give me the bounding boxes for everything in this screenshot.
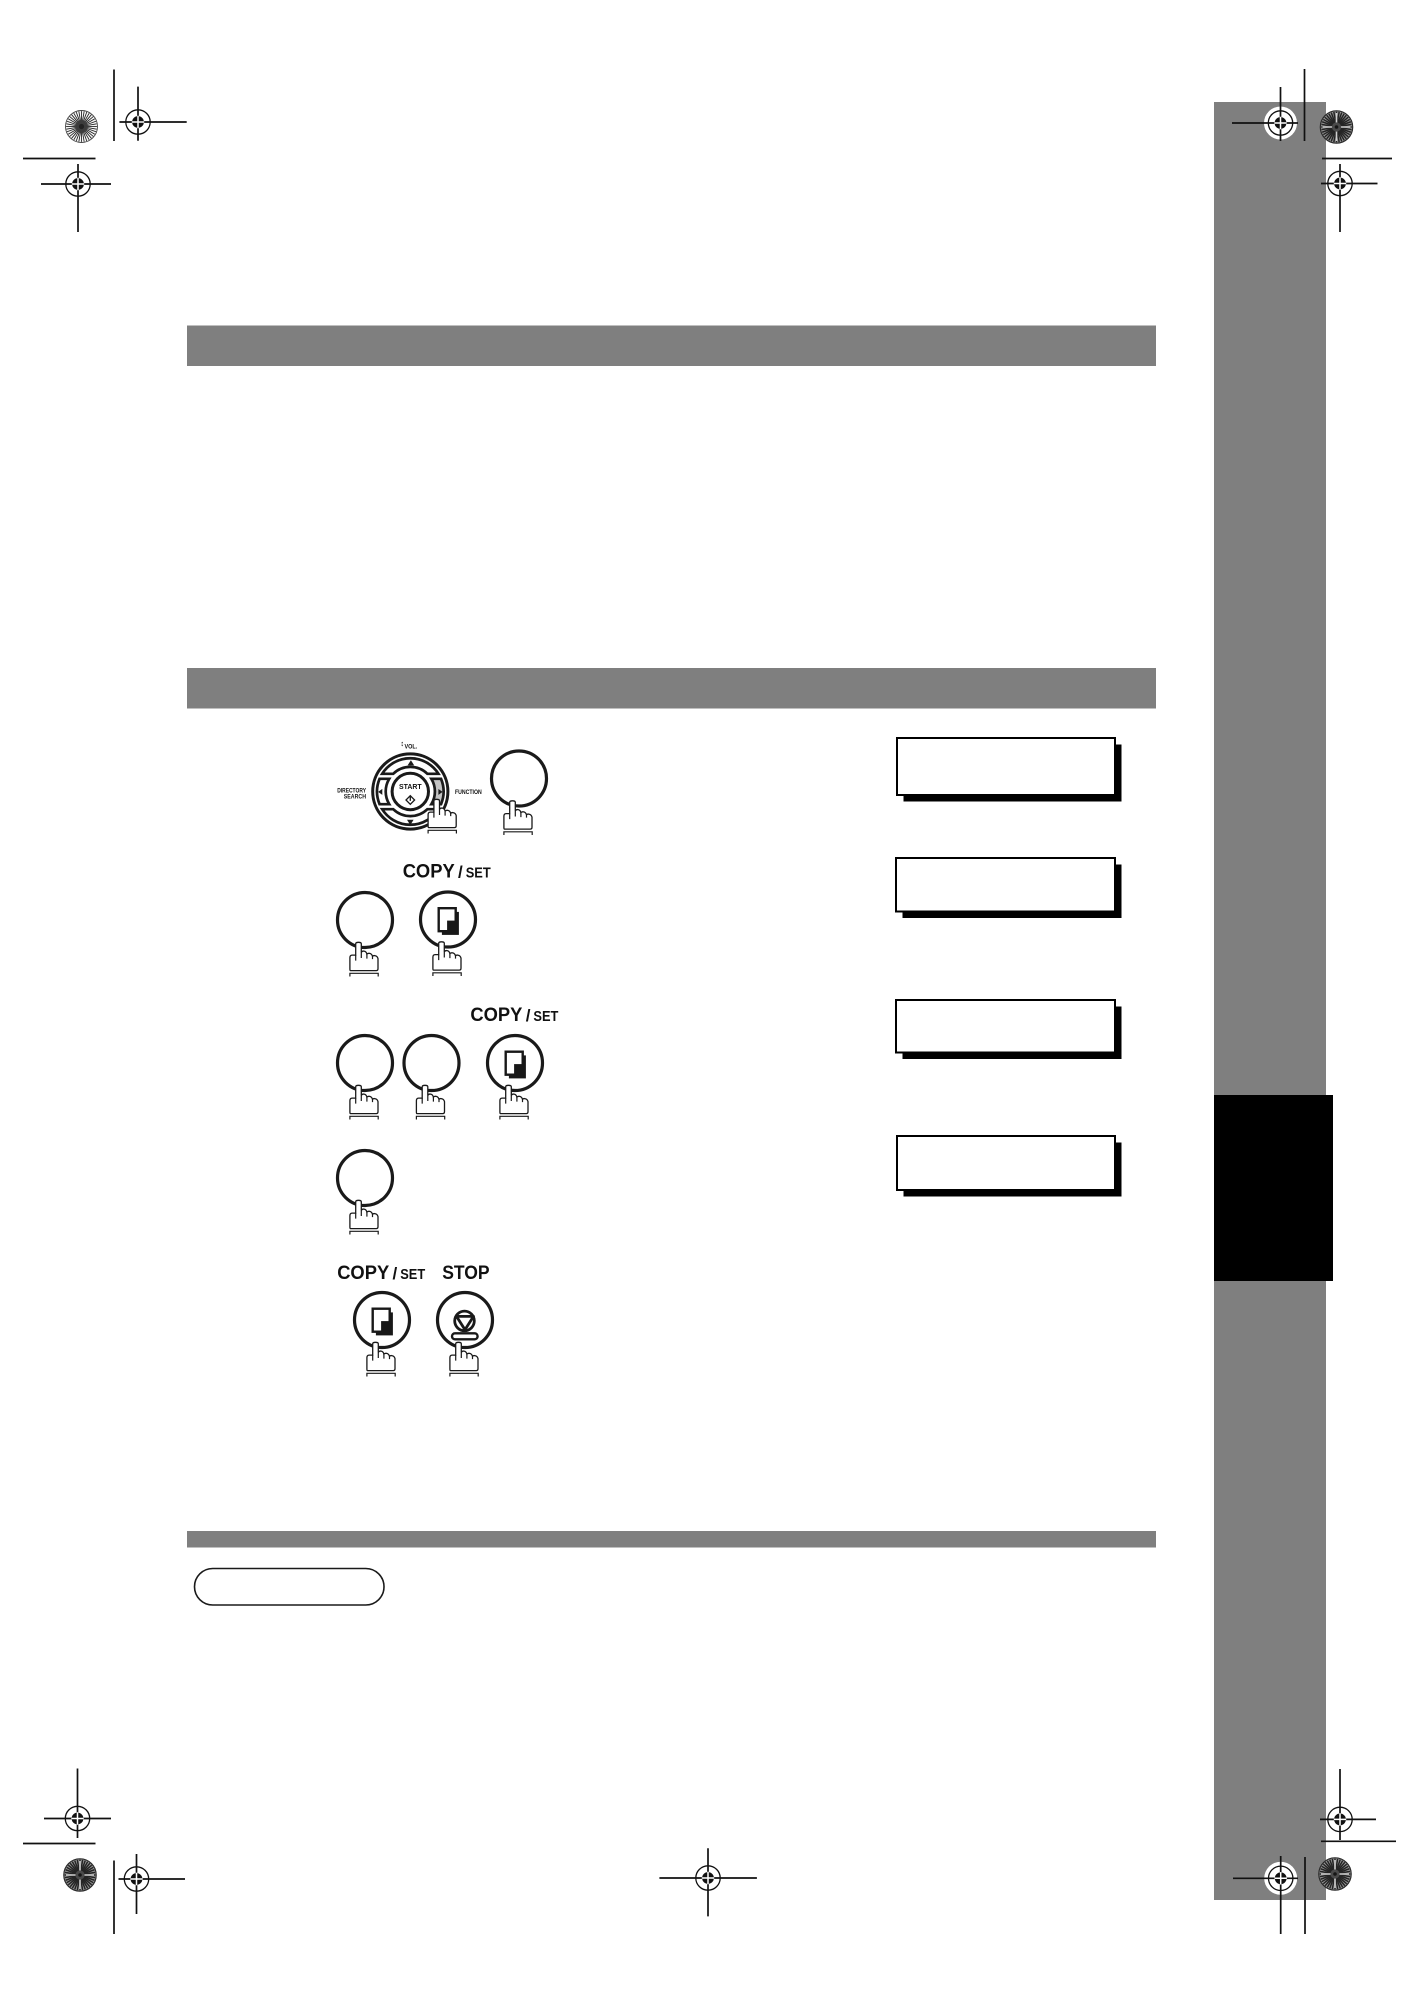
svg-text:COPY/SET: COPY/SET xyxy=(470,1005,558,1026)
svg-text:STOP: STOP xyxy=(442,1263,490,1284)
svg-text:COPY/SET: COPY/SET xyxy=(403,862,491,883)
svg-text:START: START xyxy=(399,782,422,791)
svg-text:COPY/SET: COPY/SET xyxy=(337,1263,425,1284)
svg-text:VOL.: VOL. xyxy=(405,744,418,751)
svg-text:SEARCH: SEARCH xyxy=(344,794,366,801)
svg-text:FUNCTION: FUNCTION xyxy=(455,789,482,796)
